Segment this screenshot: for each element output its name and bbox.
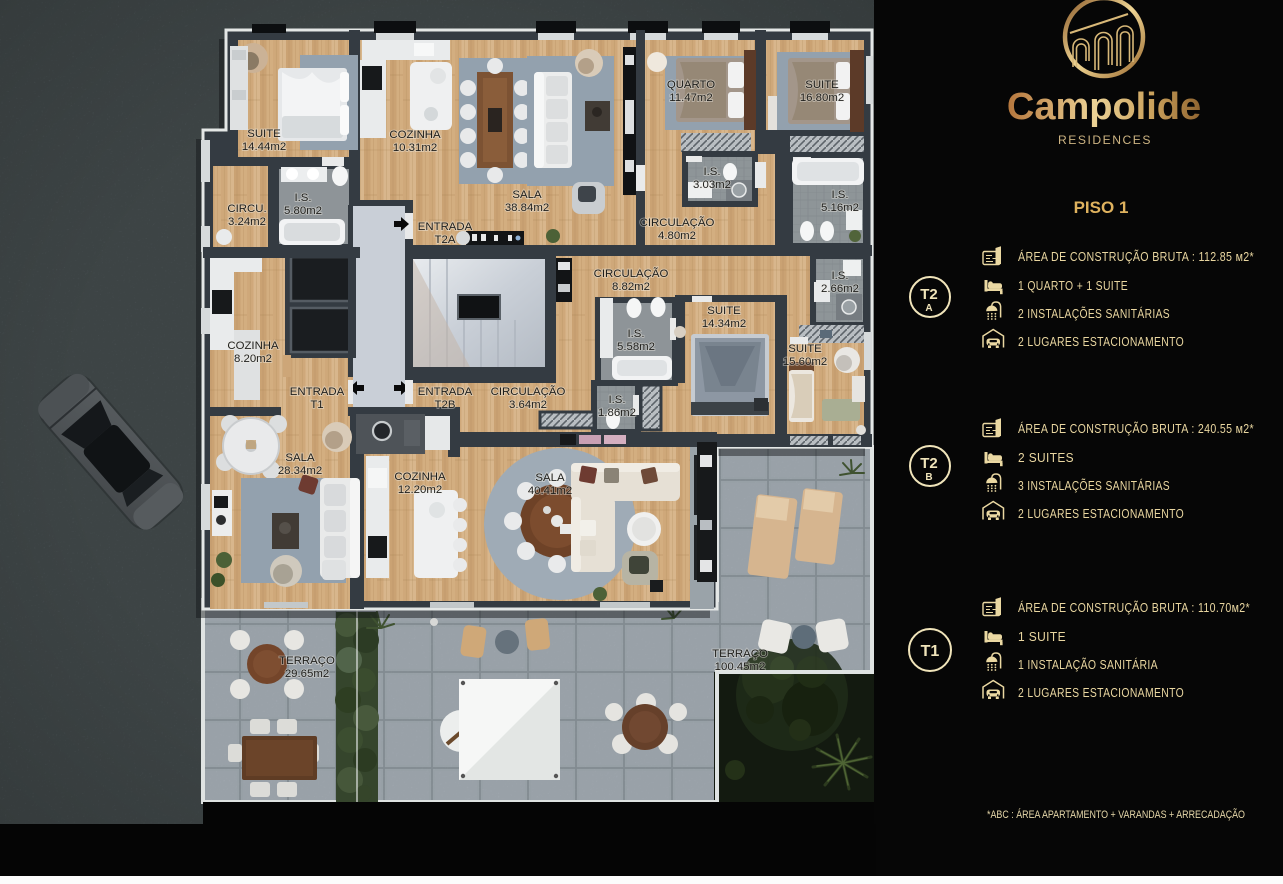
svg-text:TERRAÇO29.65m2: TERRAÇO29.65m2 [279,655,335,680]
svg-text:2 LUGARES ESTACIONAMENTO: 2 LUGARES ESTACIONAMENTO [1018,335,1184,349]
svg-text:ÁREA DE CONSTRUÇÃO BRUTA : 11: ÁREA DE CONSTRUÇÃO BRUTA : 110.70м2* [1018,600,1250,615]
svg-text:SUITE14.44m2: SUITE14.44m2 [242,128,286,153]
svg-text:SUITE15.60m2: SUITE15.60m2 [783,343,827,368]
svg-text:2 SUITES: 2 SUITES [1018,451,1074,465]
svg-text:T2: T2 [920,455,938,472]
svg-text:T1: T1 [921,643,940,660]
svg-text:T2: T2 [920,286,938,303]
svg-text:COZINHA8.20m2: COZINHA8.20m2 [227,340,279,365]
svg-text:2 INSTALAÇÕES SANITÁRIAS: 2 INSTALAÇÕES SANITÁRIAS [1018,306,1170,321]
svg-text:COZINHA10.31m2: COZINHA10.31m2 [389,129,441,154]
svg-text:1 SUITE: 1 SUITE [1018,630,1066,644]
svg-text:A: A [925,303,932,314]
svg-text:ÁREA DE CONSTRUÇÃO BRUTA : 11: ÁREA DE CONSTRUÇÃO BRUTA : 112.85 м2* [1018,249,1254,264]
svg-text:SUITE14.34m2: SUITE14.34m2 [702,305,746,330]
svg-text:B: B [925,472,932,483]
svg-text:QUARTO11.47m2: QUARTO11.47m2 [667,79,715,104]
svg-text:RESIDENCES: RESIDENCES [1058,133,1152,147]
svg-text:*ABC : ÁREA APARTAMENTO + VAR: *ABC : ÁREA APARTAMENTO + VARANDAS + ARR… [987,808,1245,821]
svg-text:2 LUGARES ESTACIONAMENTO: 2 LUGARES ESTACIONAMENTO [1018,507,1184,521]
svg-text:TERRAÇO100.45m2: TERRAÇO100.45m2 [712,648,768,673]
svg-text:3 INSTALAÇÕES SANITÁRIAS: 3 INSTALAÇÕES SANITÁRIAS [1018,478,1170,493]
svg-text:1 QUARTO + 1 SUITE: 1 QUARTO + 1 SUITE [1018,279,1128,293]
svg-text:COZINHA12.20m2: COZINHA12.20m2 [394,471,446,496]
svg-text:CIRCU.3.24m2: CIRCU.3.24m2 [227,203,266,228]
svg-text:PISO 1: PISO 1 [1074,198,1129,217]
svg-text:Campolide: Campolide [1007,86,1201,128]
svg-text:1 INSTALAÇÃO SANITÁRIA: 1 INSTALAÇÃO SANITÁRIA [1018,657,1158,672]
svg-text:ÁREA DE CONSTRUÇÃO BRUTA : 24: ÁREA DE CONSTRUÇÃO BRUTA : 240.55 м2* [1018,421,1254,436]
svg-text:2 LUGARES ESTACIONAMENTO: 2 LUGARES ESTACIONAMENTO [1018,686,1184,700]
svg-text:SUITE16.80m2: SUITE16.80m2 [800,79,844,104]
